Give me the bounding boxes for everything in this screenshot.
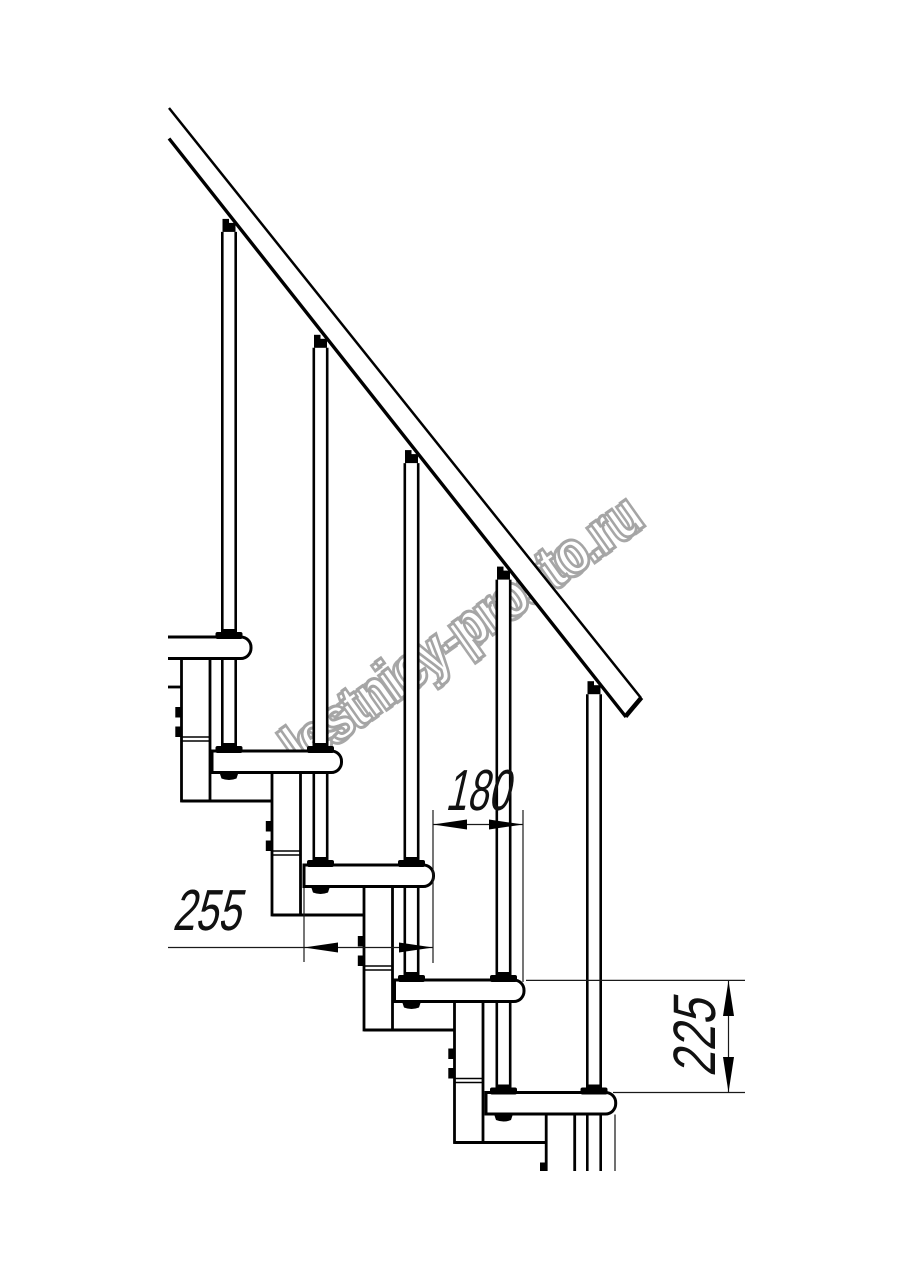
svg-text:225: 225 (661, 987, 728, 1079)
